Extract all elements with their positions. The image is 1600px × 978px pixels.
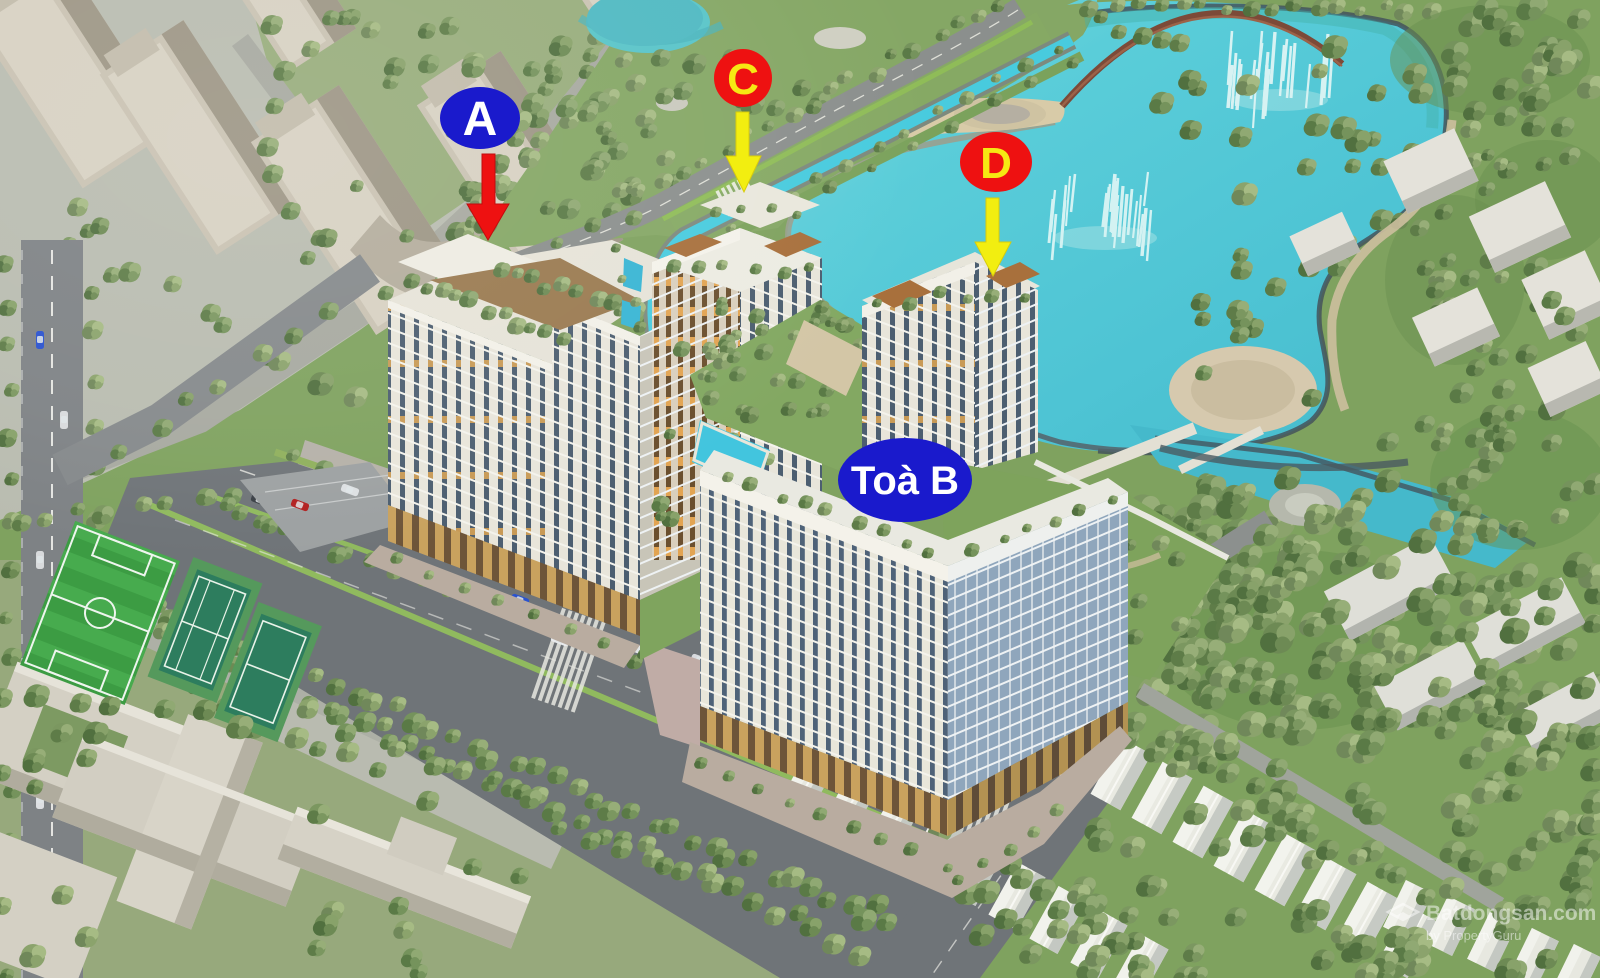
svg-text:A: A <box>463 93 498 146</box>
svg-text:C: C <box>727 55 759 104</box>
svg-text:Batdongsan.com: Batdongsan.com <box>1426 902 1596 925</box>
svg-text:by PropertyGuru: by PropertyGuru <box>1426 928 1521 943</box>
svg-text:Toà B: Toà B <box>851 459 959 503</box>
svg-text:D: D <box>980 139 1012 188</box>
